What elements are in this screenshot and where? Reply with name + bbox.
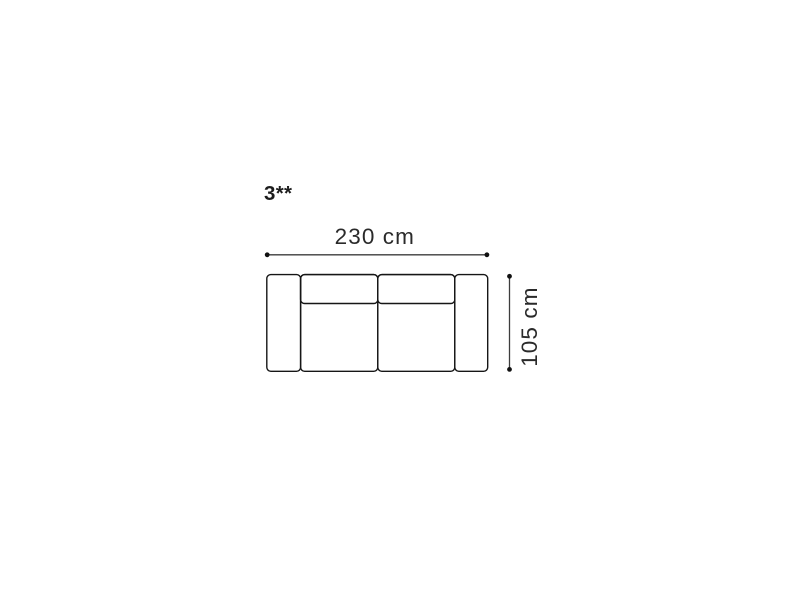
svg-text:105 cm: 105 cm	[517, 286, 542, 366]
svg-text:3**: 3**	[264, 182, 292, 205]
svg-text:230 cm: 230 cm	[335, 224, 415, 249]
